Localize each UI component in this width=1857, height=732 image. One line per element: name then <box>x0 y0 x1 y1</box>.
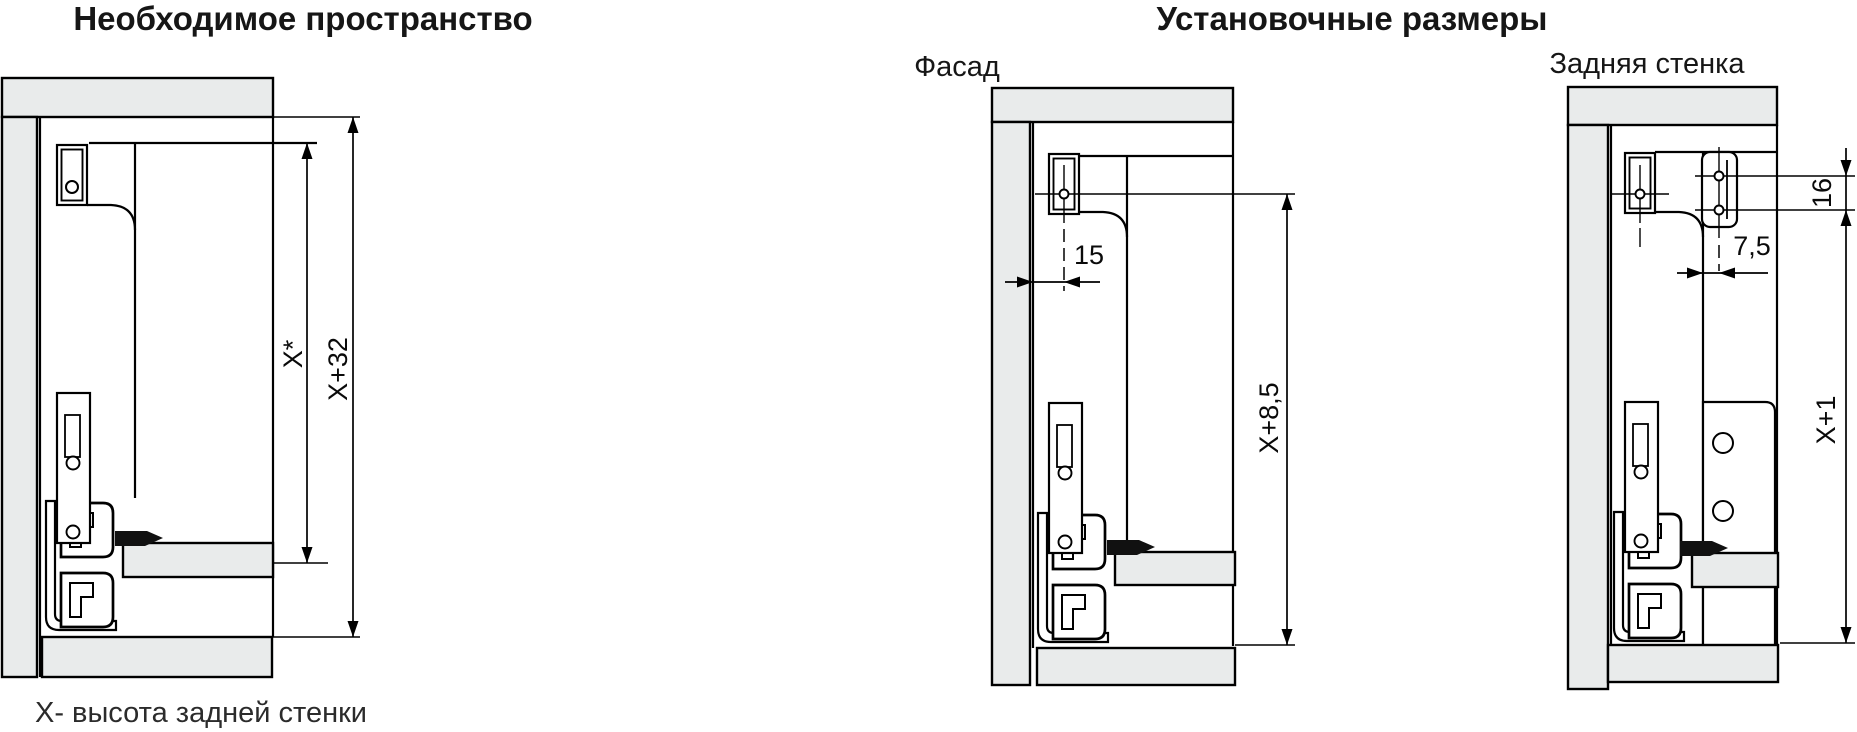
cabinet-bottom-panel <box>1037 648 1235 685</box>
dim-label-16: 16 <box>1807 178 1837 208</box>
right-section-title: Установочные размеры <box>1157 0 1548 37</box>
dim-label-x-plus-1: X+1 <box>1811 396 1841 445</box>
dim-label-x-plus-8-5: X+8,5 <box>1254 382 1284 453</box>
back-wall-subtitle: Задняя стенка <box>1549 48 1745 80</box>
drawer-installation-drawing: Необходимое пространство Установочные ра… <box>0 0 1857 732</box>
drawer-bottom-panel <box>1692 553 1778 587</box>
screw-hole <box>1713 501 1733 521</box>
bracket-hole <box>66 181 78 193</box>
tab-lower-hole <box>1715 206 1724 215</box>
facade-panel <box>2 117 37 677</box>
footnote-x-definition: X- высота задней стенки <box>35 697 367 729</box>
technical-drawing-canvas: Необходимое пространство Установочные ра… <box>0 0 1857 732</box>
cabinet-bottom-panel <box>42 637 272 677</box>
facade-subtitle: Фасад <box>914 51 1000 83</box>
drawer-bottom-panel <box>1115 552 1235 585</box>
dim-label-15: 15 <box>1074 240 1104 270</box>
cabinet-top-panel <box>992 88 1233 122</box>
dim-label-x-plus-32: X+32 <box>323 337 353 401</box>
facade-panel <box>1568 125 1608 689</box>
dim-label-x-star: X* <box>278 339 308 368</box>
left-section-title: Необходимое пространство <box>73 0 532 37</box>
dim-label-7-5: 7,5 <box>1733 231 1771 261</box>
cabinet-bottom-panel <box>1608 645 1778 682</box>
tab-upper-hole <box>1715 172 1724 181</box>
cabinet-top-panel <box>2 78 273 117</box>
facade-panel <box>992 122 1030 685</box>
screw-hole <box>1713 433 1733 453</box>
drawer-bottom-panel <box>123 543 273 577</box>
cabinet-top-panel <box>1568 87 1777 125</box>
